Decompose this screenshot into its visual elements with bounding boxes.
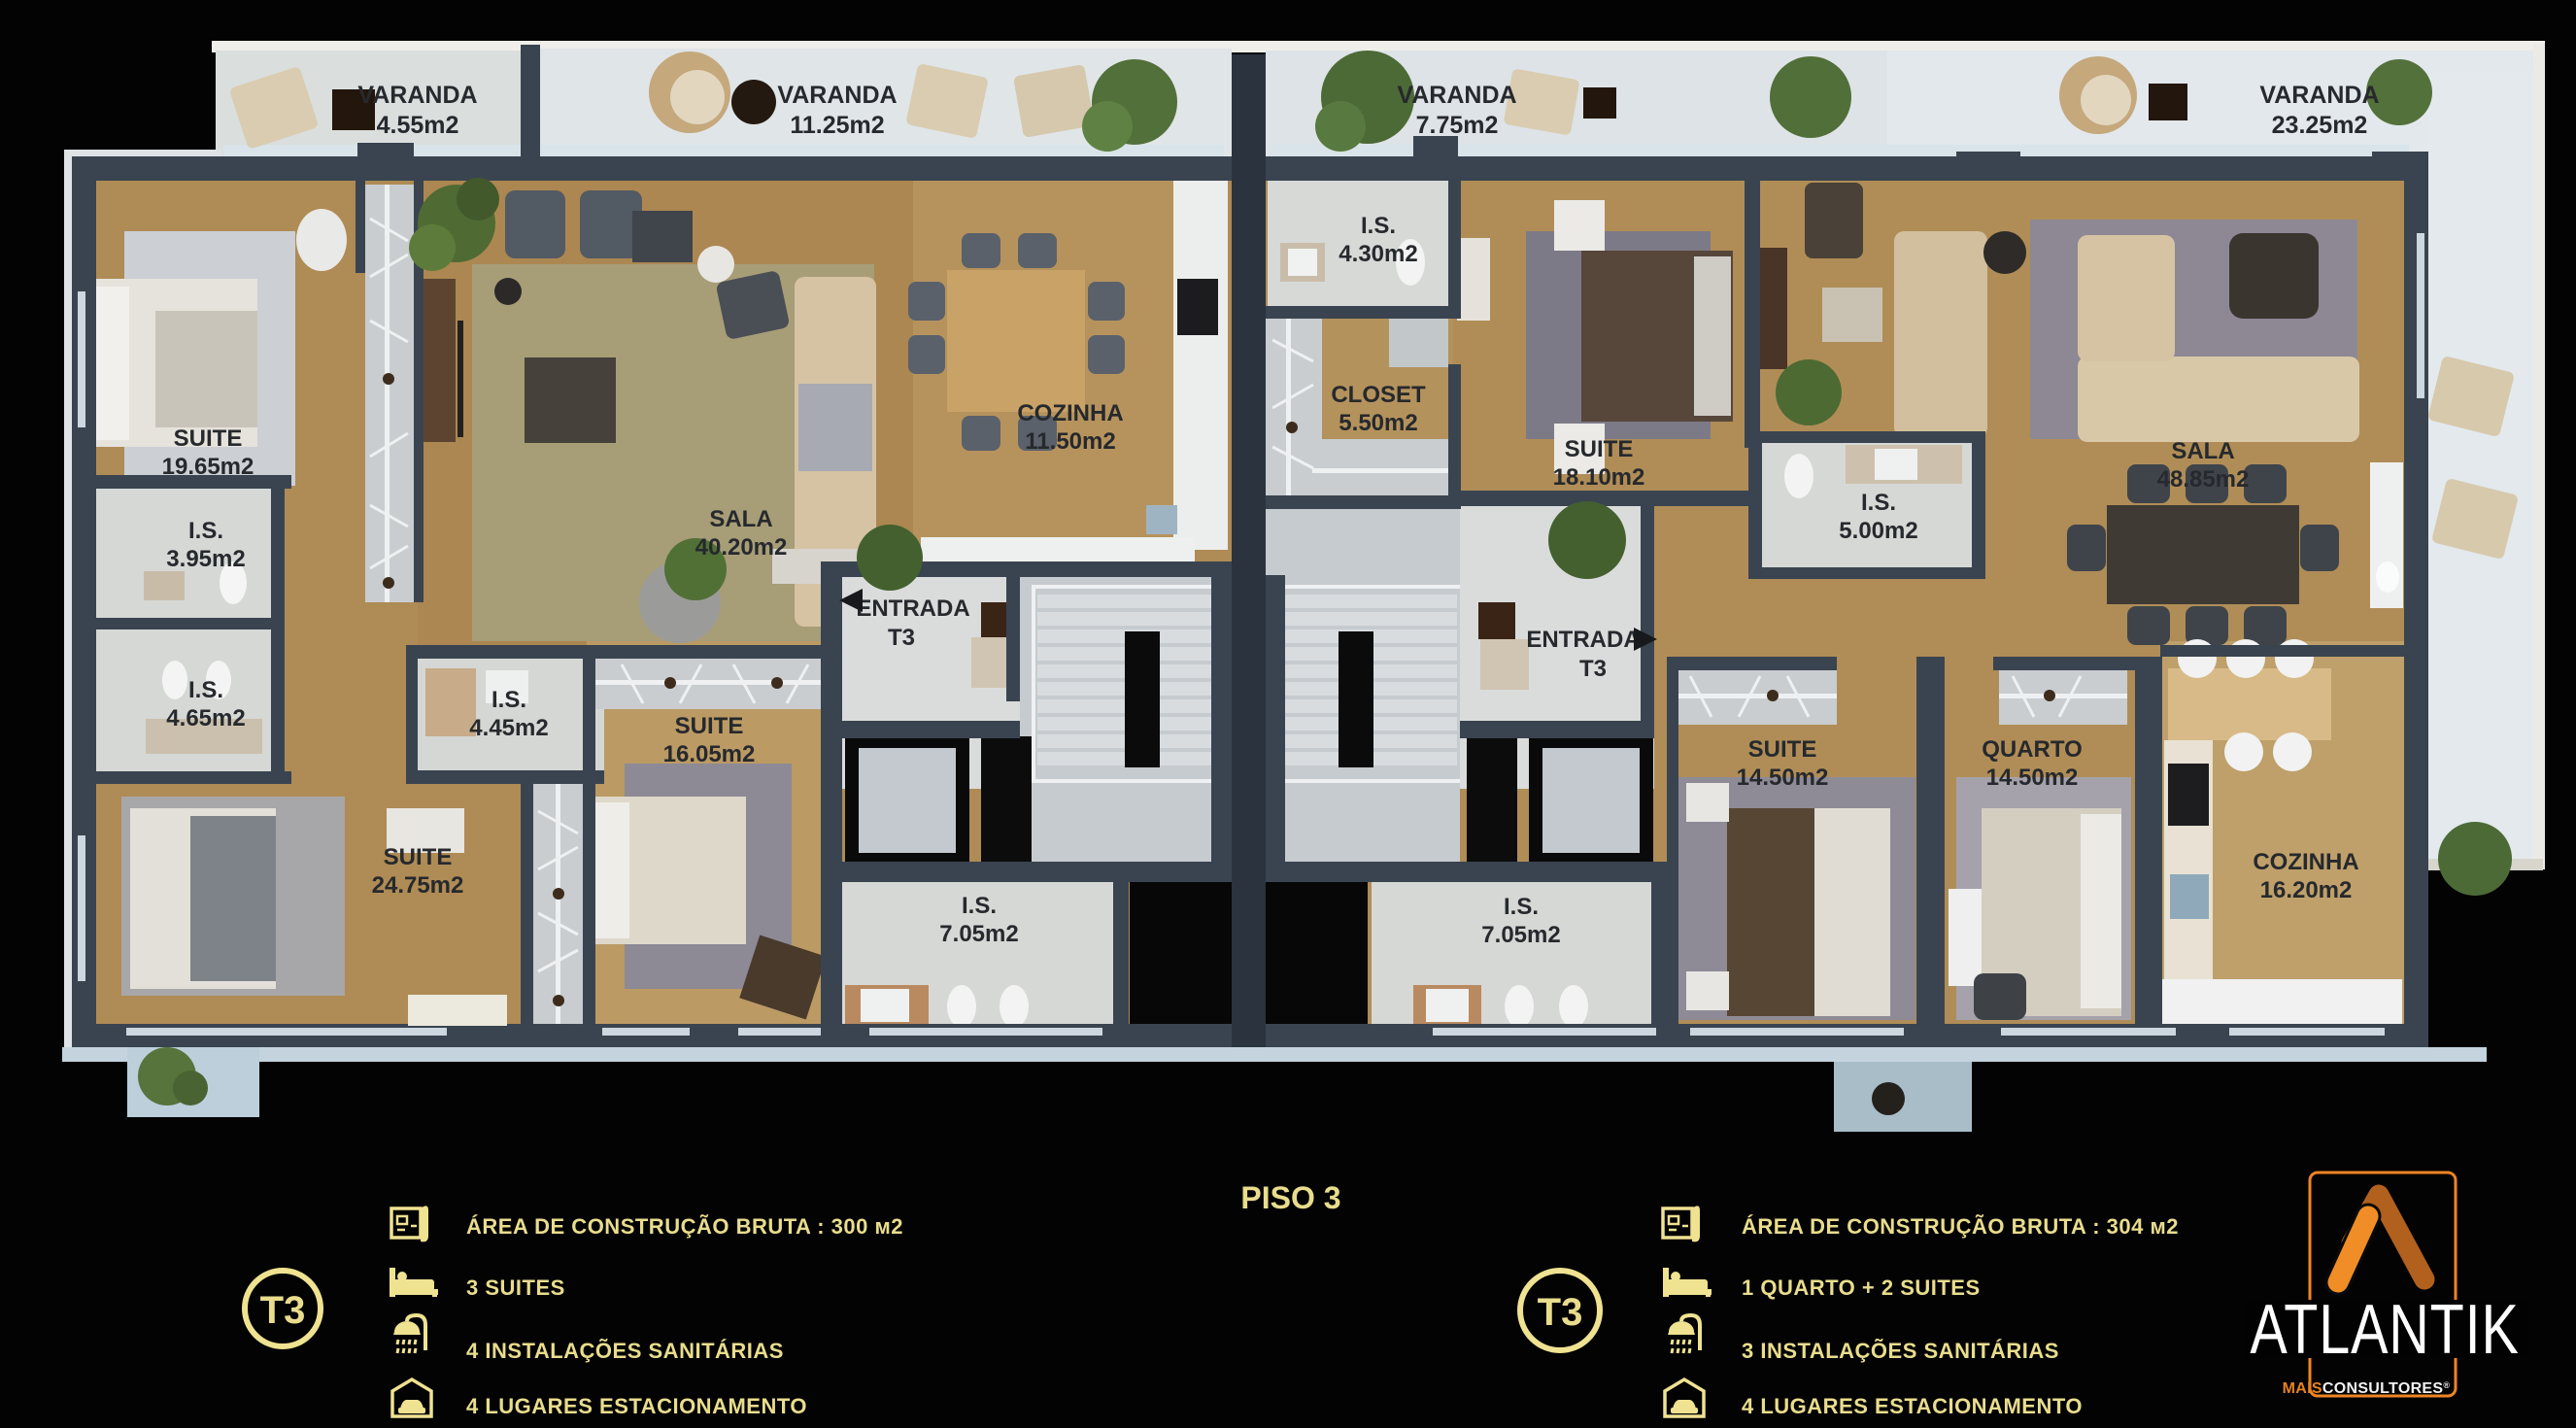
svg-text:48.85m2: 48.85m2 — [2157, 466, 2250, 493]
svg-text:ENTRADA: ENTRADA — [1526, 627, 1640, 653]
svg-text:4 INSTALAÇÕES SANITÁRIAS: 4 INSTALAÇÕES SANITÁRIAS — [466, 1339, 784, 1363]
svg-text:I.S.: I.S. — [491, 687, 526, 713]
svg-text:SUITE: SUITE — [384, 844, 453, 870]
svg-text:SUITE: SUITE — [174, 425, 243, 452]
svg-text:VARANDA: VARANDA — [2259, 82, 2379, 109]
svg-text:I.S.: I.S. — [188, 677, 223, 703]
svg-text:11.25m2: 11.25m2 — [790, 112, 884, 139]
svg-text:I.S.: I.S. — [188, 518, 223, 544]
svg-text:5.00m2: 5.00m2 — [1839, 518, 1917, 544]
svg-text:16.05m2: 16.05m2 — [663, 741, 756, 767]
svg-text:3 SUITES: 3 SUITES — [466, 1275, 565, 1300]
svg-text:40.20m2: 40.20m2 — [695, 534, 788, 561]
svg-text:1 QUARTO + 2 SUITES: 1 QUARTO + 2 SUITES — [1742, 1275, 1981, 1300]
svg-text:ATLANTIK: ATLANTIK — [2250, 1290, 2519, 1369]
svg-text:14.50m2: 14.50m2 — [1737, 765, 1829, 791]
svg-text:4.30m2: 4.30m2 — [1339, 241, 1417, 267]
svg-text:18.10m2: 18.10m2 — [1553, 464, 1645, 491]
svg-text:COZINHA: COZINHA — [2253, 849, 2358, 875]
svg-text:ENTRADA: ENTRADA — [856, 595, 969, 622]
svg-text:VARANDA: VARANDA — [777, 82, 897, 109]
svg-text:CLOSET: CLOSET — [1331, 382, 1426, 408]
svg-text:24.75m2: 24.75m2 — [372, 872, 464, 899]
svg-text:ÁREA DE CONSTRUÇÃO BRUTA : 30: ÁREA DE CONSTRUÇÃO BRUTA : 300 м2 — [466, 1214, 903, 1239]
svg-text:7.05m2: 7.05m2 — [939, 921, 1018, 947]
svg-text:SUITE: SUITE — [1748, 736, 1817, 763]
svg-text:4 LUGARES ESTACIONAMENTO: 4 LUGARES ESTACIONAMENTO — [466, 1394, 807, 1418]
svg-text:4 LUGARES ESTACIONAMENTO: 4 LUGARES ESTACIONAMENTO — [1742, 1394, 2083, 1418]
svg-text:PISO 3: PISO 3 — [1240, 1180, 1340, 1215]
svg-text:I.S.: I.S. — [1361, 213, 1396, 239]
svg-text:5.50m2: 5.50m2 — [1339, 410, 1417, 436]
svg-text:4.45m2: 4.45m2 — [469, 715, 548, 741]
svg-text:I.S.: I.S. — [1861, 490, 1896, 516]
svg-text:SUITE: SUITE — [1565, 436, 1634, 462]
svg-text:VARANDA: VARANDA — [1397, 82, 1516, 109]
svg-text:7.75m2: 7.75m2 — [1416, 112, 1499, 139]
svg-text:I.S.: I.S. — [962, 893, 997, 919]
svg-text:19.65m2: 19.65m2 — [162, 454, 254, 480]
svg-text:16.20m2: 16.20m2 — [2260, 877, 2353, 903]
svg-text:3.95m2: 3.95m2 — [166, 546, 245, 572]
svg-text:11.50m2: 11.50m2 — [1025, 428, 1115, 455]
svg-text:VARANDA: VARANDA — [357, 82, 477, 109]
svg-text:3 INSTALAÇÕES SANITÁRIAS: 3 INSTALAÇÕES SANITÁRIAS — [1742, 1339, 2059, 1363]
svg-text:4.65m2: 4.65m2 — [166, 705, 245, 731]
svg-text:QUARTO: QUARTO — [1982, 736, 2083, 763]
svg-text:MAISCONSULTORES®: MAISCONSULTORES® — [2283, 1380, 2451, 1397]
svg-text:ÁREA DE CONSTRUÇÃO BRUTA : 30: ÁREA DE CONSTRUÇÃO BRUTA : 304 м2 — [1742, 1214, 2179, 1239]
svg-text:SALA: SALA — [709, 506, 772, 532]
svg-text:14.50m2: 14.50m2 — [1986, 765, 2079, 791]
svg-text:4.55m2: 4.55m2 — [377, 112, 459, 139]
svg-text:SUITE: SUITE — [675, 713, 744, 739]
svg-text:T3: T3 — [260, 1289, 306, 1332]
svg-text:23.25m2: 23.25m2 — [2272, 112, 2368, 139]
svg-text:7.05m2: 7.05m2 — [1481, 922, 1560, 948]
svg-text:T3: T3 — [1538, 1291, 1583, 1334]
svg-text:SALA: SALA — [2171, 438, 2234, 464]
svg-text:T3: T3 — [1579, 656, 1607, 682]
svg-text:I.S.: I.S. — [1504, 894, 1539, 920]
svg-text:T3: T3 — [888, 625, 915, 651]
svg-text:COZINHA: COZINHA — [1017, 400, 1123, 426]
